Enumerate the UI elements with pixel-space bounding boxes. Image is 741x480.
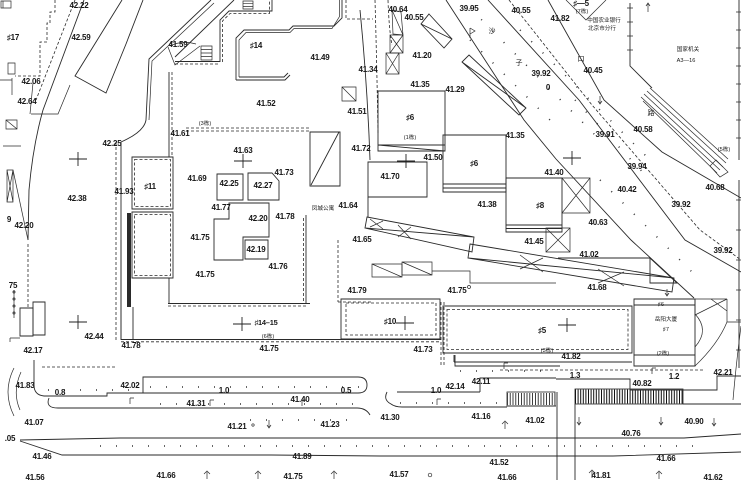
svg-text:41.20: 41.20 [412,51,432,60]
svg-text:39.91: 39.91 [595,130,615,139]
svg-text:40.58: 40.58 [633,125,653,134]
svg-text:42.44: 42.44 [84,332,104,341]
svg-text:41.40: 41.40 [544,168,564,177]
svg-text:39.92: 39.92 [531,69,551,78]
svg-text:.05: .05 [5,434,16,443]
svg-text:0.5: 0.5 [341,386,352,395]
svg-text:41.69: 41.69 [187,174,207,183]
svg-text:42.21: 42.21 [713,368,733,377]
svg-text:41.57: 41.57 [389,470,409,479]
svg-text:41.52: 41.52 [489,458,509,467]
svg-text:41.66: 41.66 [656,454,676,463]
svg-text:39.92: 39.92 [713,246,733,255]
svg-text:42.38: 42.38 [67,194,87,203]
svg-text:41.51: 41.51 [347,107,367,116]
svg-text:41.93: 41.93 [114,187,134,196]
svg-text:0.8: 0.8 [55,388,66,397]
svg-text:41.49: 41.49 [310,53,330,62]
svg-text:国家机关: 国家机关 [677,45,700,53]
svg-text:(7栋): (7栋) [576,7,589,15]
svg-text:1.3: 1.3 [570,371,581,380]
svg-text:北京市分行: 北京市分行 [588,24,616,32]
svg-text:(3栋): (3栋) [199,119,212,127]
svg-text:41.77: 41.77 [211,203,231,212]
svg-text:42.02: 42.02 [120,381,140,390]
svg-text:42.27: 42.27 [253,181,273,190]
svg-text:41.75: 41.75 [190,233,210,242]
svg-text:41.50: 41.50 [423,153,443,162]
svg-text:41.75: 41.75 [259,344,279,353]
svg-text:(2栋): (2栋) [657,349,670,357]
svg-text:42.14: 42.14 [445,382,465,391]
svg-text:41.63: 41.63 [233,146,253,155]
svg-text:41.75: 41.75 [195,270,215,279]
svg-text:口: 口 [578,55,585,63]
svg-text:41.78: 41.78 [121,341,141,350]
svg-text:(6栋): (6栋) [262,332,275,340]
svg-text:41.78: 41.78 [275,212,295,221]
svg-text:凤城公寓: 凤城公寓 [312,204,335,212]
svg-text:41.82: 41.82 [561,352,581,361]
svg-text:41.02: 41.02 [525,416,545,425]
svg-text:41.21: 41.21 [227,422,247,431]
svg-text:41.38: 41.38 [477,200,497,209]
svg-text:♯14: ♯14 [250,41,263,50]
svg-text:1.0: 1.0 [219,386,230,395]
svg-text:♯7: ♯7 [663,327,669,333]
svg-text:(3栋): (3栋) [541,346,554,354]
svg-text:41.29: 41.29 [445,85,465,94]
svg-text:40.55: 40.55 [511,6,531,15]
svg-text:41.66: 41.66 [156,471,176,480]
svg-text:A3—16: A3—16 [677,58,696,64]
svg-text:♯5: ♯5 [538,326,547,335]
svg-text:1.0: 1.0 [431,386,442,395]
svg-text:42.22: 42.22 [69,1,89,10]
svg-text:41.70: 41.70 [380,172,400,181]
svg-text:41.66: 41.66 [497,473,517,480]
svg-text:41.64: 41.64 [338,201,358,210]
svg-text:39.95: 39.95 [459,4,479,13]
svg-text:42.64: 42.64 [17,97,37,106]
svg-text:沙: 沙 [489,27,496,35]
svg-text:41.59: 41.59 [168,40,188,49]
svg-text:♯10: ♯10 [384,317,397,326]
svg-text:♯11: ♯11 [144,182,157,191]
svg-text:39.92: 39.92 [671,200,691,209]
svg-text:41.75: 41.75 [283,472,303,480]
svg-text:42.59: 42.59 [71,33,91,42]
svg-text:41.56: 41.56 [25,473,45,480]
svg-text:41.62: 41.62 [703,473,723,480]
svg-text:♯—5: ♯—5 [573,0,590,8]
svg-text:(5栋): (5栋) [718,145,731,153]
svg-text:39.94: 39.94 [627,162,647,171]
svg-text:41.73: 41.73 [413,345,433,354]
svg-text:(1栋): (1栋) [404,133,417,141]
svg-text:岳阳大厦: 岳阳大厦 [655,315,678,323]
svg-text:♯6: ♯6 [406,113,415,122]
svg-text:41.76: 41.76 [268,262,288,271]
svg-text:41.68: 41.68 [587,283,607,292]
svg-text:42.20: 42.20 [248,214,268,223]
svg-text:41.31: 41.31 [186,399,206,408]
svg-text:40.45: 40.45 [583,66,603,75]
svg-text:42.20: 42.20 [14,221,34,230]
svg-text:41.52: 41.52 [256,99,276,108]
svg-text:42.06: 42.06 [21,77,41,86]
svg-text:41.79: 41.79 [347,286,367,295]
svg-text:42.25: 42.25 [102,139,122,148]
svg-text:41.73: 41.73 [274,168,294,177]
svg-text:41.35: 41.35 [505,131,525,140]
svg-text:41.65: 41.65 [352,235,372,244]
svg-text:♯8: ♯8 [536,201,545,210]
svg-text:40.82: 40.82 [632,379,652,388]
svg-text:41.23: 41.23 [320,420,340,429]
svg-text:♯6: ♯6 [470,159,479,168]
svg-text:41.89: 41.89 [292,452,312,461]
svg-text:40.55: 40.55 [404,13,424,22]
svg-text:42.19: 42.19 [246,245,266,254]
svg-text:♯17: ♯17 [7,33,20,42]
svg-text:41.45: 41.45 [524,237,544,246]
svg-text:中国农业银行: 中国农业银行 [587,16,621,24]
svg-text:♯6: ♯6 [658,302,664,308]
svg-text:41.75: 41.75 [447,286,467,295]
svg-text:42.17: 42.17 [23,346,43,355]
svg-text:41.61: 41.61 [170,129,190,138]
svg-text:42.11: 42.11 [472,377,491,386]
svg-text:路: 路 [648,108,655,117]
svg-text:子: 子 [516,59,523,67]
svg-text:♯14–15: ♯14–15 [254,318,277,327]
svg-text:40.68: 40.68 [705,183,725,192]
svg-text:41.16: 41.16 [471,412,491,421]
svg-text:40.42: 40.42 [617,185,637,194]
svg-text:40.63: 40.63 [588,218,608,227]
svg-text:41.07: 41.07 [24,418,44,427]
svg-text:1.2: 1.2 [669,372,680,381]
svg-text:42.25: 42.25 [219,179,239,188]
svg-text:41.82: 41.82 [550,14,570,23]
svg-text:41.30: 41.30 [380,413,400,422]
svg-text:75: 75 [9,281,18,290]
svg-text:40.76: 40.76 [621,429,641,438]
svg-text:41.02: 41.02 [579,250,599,259]
svg-text:41.34: 41.34 [358,65,378,74]
svg-text:40.90: 40.90 [684,417,704,426]
svg-text:41.46: 41.46 [32,452,52,461]
svg-text:41.83: 41.83 [15,381,35,390]
svg-text:41.72: 41.72 [351,144,371,153]
svg-text:41.40: 41.40 [290,395,310,404]
svg-text:41.35: 41.35 [410,80,430,89]
